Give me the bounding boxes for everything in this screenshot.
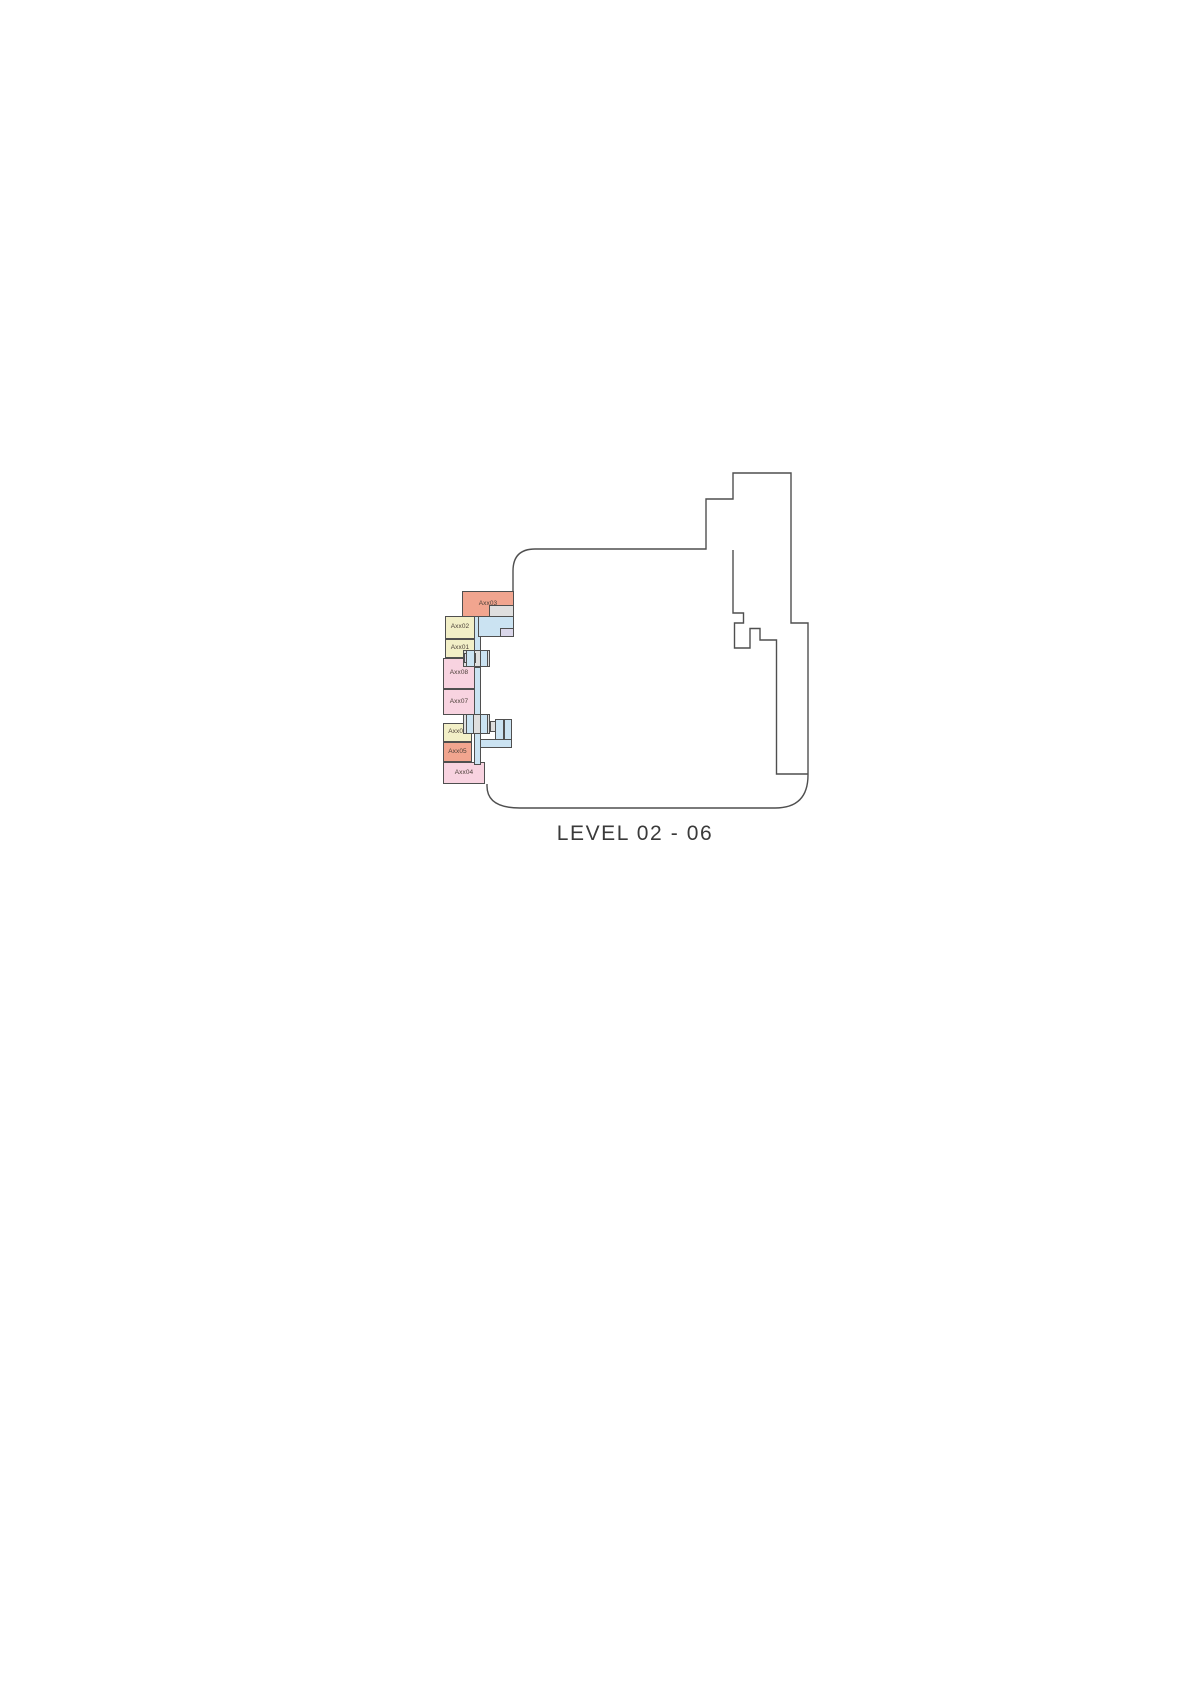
floor-plan-page: Axx03 Axx02 Axx01 Axx08 Axx07 Axx06 Axx0… xyxy=(0,0,1200,1696)
corridor-strip xyxy=(474,667,481,715)
plan-title: LEVEL 02 - 06 xyxy=(510,822,760,845)
building-partition-path xyxy=(733,550,808,774)
room-axx07[interactable]: Axx07 xyxy=(443,689,475,715)
corridor-branch xyxy=(480,739,512,748)
room-label: Axx08 xyxy=(450,670,469,677)
room-label: Axx04 xyxy=(455,770,474,777)
lift-core xyxy=(480,650,488,667)
room-axx04[interactable]: Axx04 xyxy=(443,762,485,784)
lift-core xyxy=(466,650,475,667)
room-label: Axx05 xyxy=(448,749,467,756)
lift-core xyxy=(480,714,488,734)
room-axx05[interactable]: Axx05 xyxy=(443,742,472,762)
room-label: Axx07 xyxy=(450,699,469,706)
lift-core xyxy=(466,714,474,734)
corridor-strip xyxy=(474,733,481,765)
floor-plan-drawing xyxy=(0,0,1200,1696)
shaft-core xyxy=(500,628,514,637)
room-axx02[interactable]: Axx02 xyxy=(445,616,475,639)
room-label: Axx02 xyxy=(451,624,470,631)
